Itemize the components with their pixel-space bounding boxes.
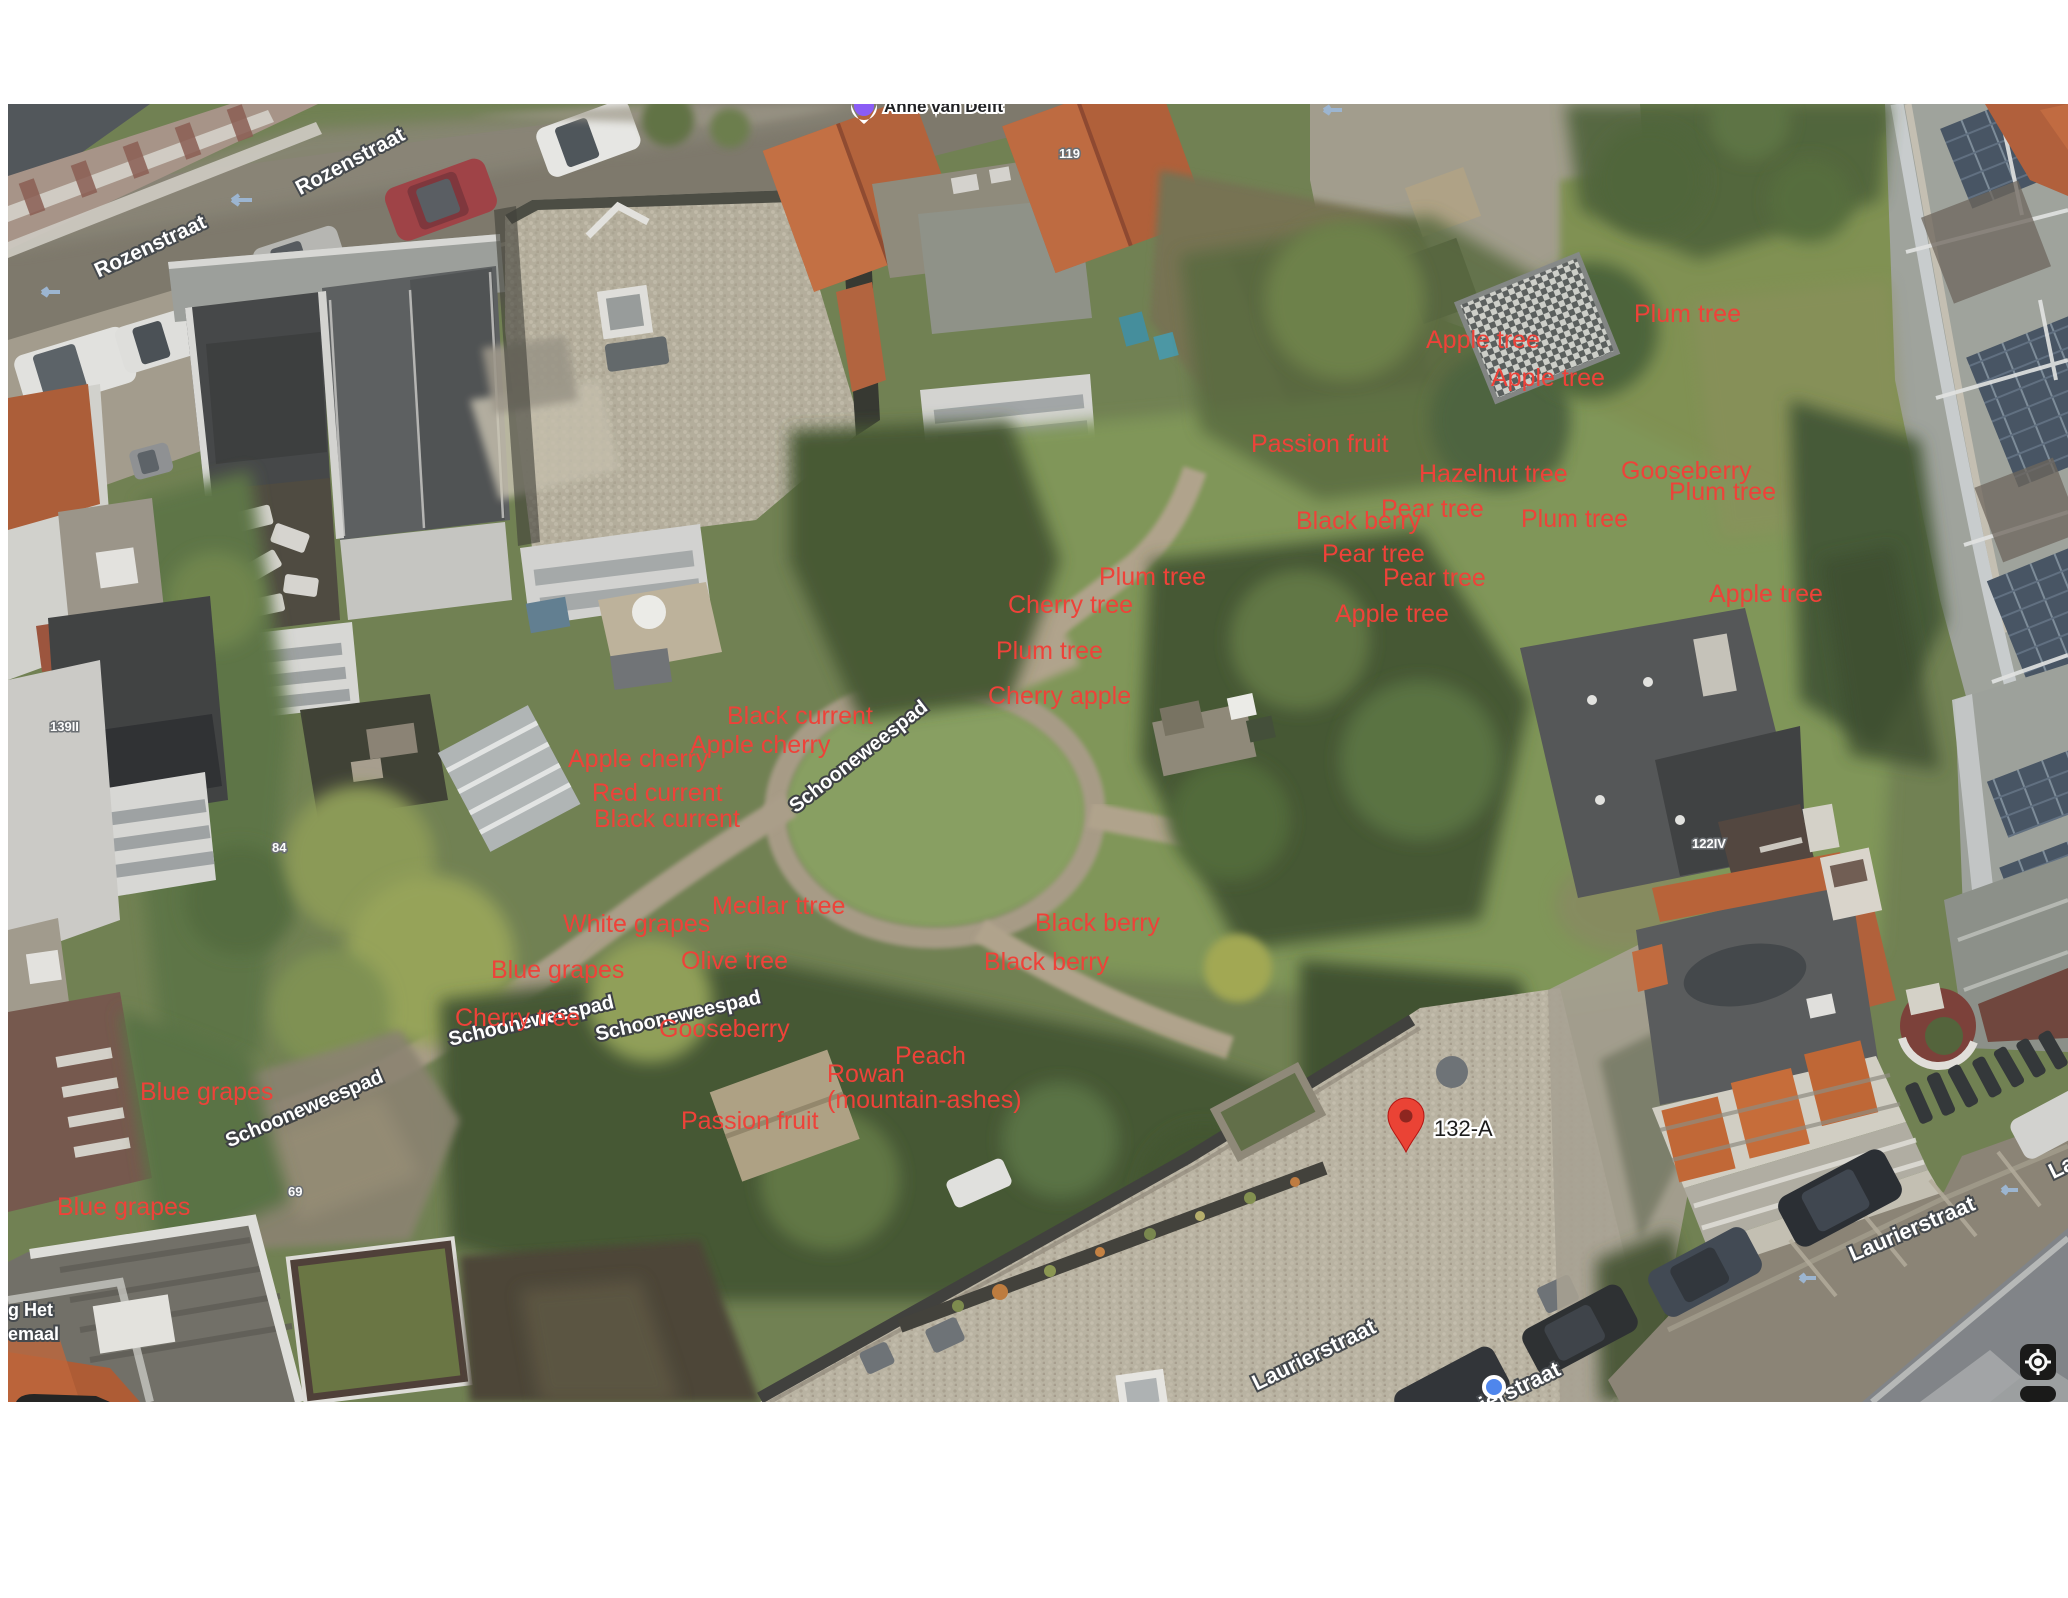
svg-text:Passion fruit: Passion fruit [1251,430,1389,458]
svg-text:Apple cherry: Apple cherry [568,745,709,773]
svg-text:Gooseberry: Gooseberry [659,1015,790,1043]
svg-text:Plum tree: Plum tree [1521,505,1628,533]
svg-text:Plum tree: Plum tree [1634,300,1741,328]
svg-text:Passion fruit: Passion fruit [681,1107,819,1135]
svg-text:132-A: 132-A [1434,1116,1493,1141]
svg-text:69: 69 [288,1184,302,1199]
svg-text:84: 84 [272,840,287,855]
svg-text:Apple tree: Apple tree [1335,600,1449,628]
svg-text:Black current: Black current [594,805,740,833]
svg-text:Red current: Red current [592,779,723,807]
svg-text:Blue grapes: Blue grapes [140,1078,273,1106]
svg-text:Peach: Peach [895,1042,966,1070]
svg-text:Plum tree: Plum tree [1099,563,1206,591]
svg-text:119: 119 [1059,146,1080,161]
svg-text:Apple cherry: Apple cherry [690,731,831,759]
svg-text:Pear tree: Pear tree [1383,564,1486,592]
svg-text:g Het: g Het [8,1300,53,1320]
svg-text:Rowan: Rowan [827,1060,905,1088]
svg-text:Apple tree: Apple tree [1491,364,1605,392]
svg-text:Anne van Delft: Anne van Delft [884,104,1003,116]
svg-text:Plum tree: Plum tree [996,637,1103,665]
svg-text:139II: 139II [50,719,79,734]
svg-text:Medlar ttree: Medlar ttree [712,892,845,920]
svg-text:Black berry: Black berry [984,948,1110,976]
svg-text:Plum tree: Plum tree [1669,478,1776,506]
svg-text:Hazelnut tree: Hazelnut tree [1419,460,1568,488]
svg-text:emaal: emaal [8,1324,59,1344]
svg-text:Blue grapes: Blue grapes [57,1193,190,1221]
svg-text:Blue grapes: Blue grapes [491,956,624,984]
svg-text:Black berry: Black berry [1296,507,1422,535]
svg-text:Black current: Black current [727,702,873,730]
svg-text:122IV: 122IV [1692,836,1726,851]
svg-text:Cherry tree: Cherry tree [455,1004,580,1032]
svg-text:Olive tree: Olive tree [681,947,788,975]
svg-text:Black berry: Black berry [1035,909,1161,937]
svg-text:Cherry apple: Cherry apple [988,682,1131,710]
svg-text:Apple tree: Apple tree [1709,580,1823,608]
svg-text:(mountain-ashes): (mountain-ashes) [827,1086,1022,1114]
svg-text:Cherry tree: Cherry tree [1008,591,1133,619]
svg-text:Apple tree: Apple tree [1426,326,1540,354]
svg-text:White grapes: White grapes [563,910,710,938]
